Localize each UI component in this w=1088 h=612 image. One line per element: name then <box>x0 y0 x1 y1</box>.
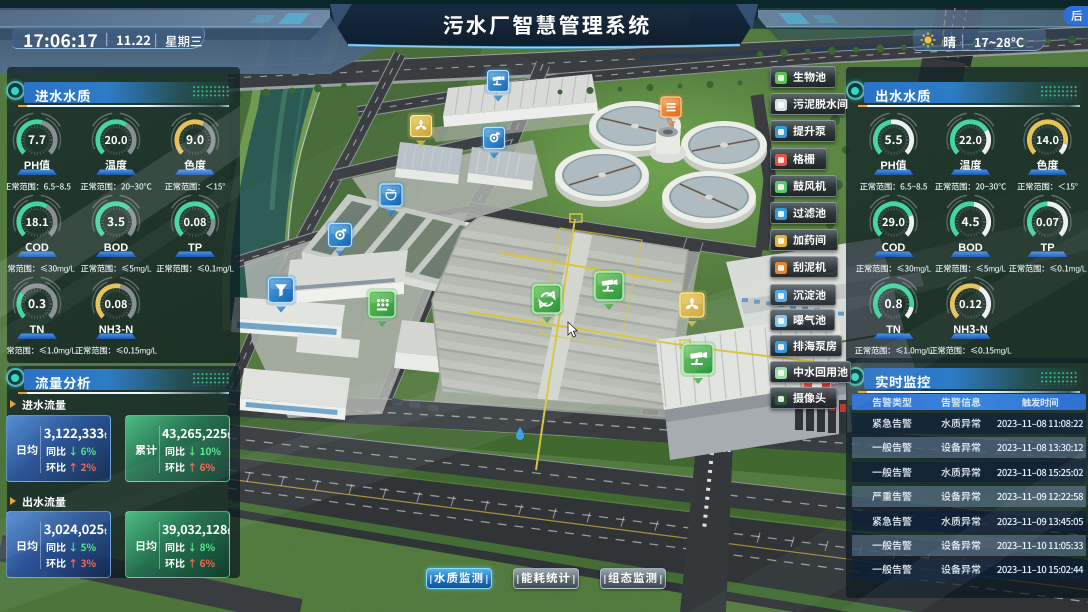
svg-text:TP: TP <box>1040 239 1054 255</box>
svg-text:0.3: 0.3 <box>28 295 46 312</box>
svg-text:20.0: 20.0 <box>104 132 127 148</box>
svg-text:9.0: 9.0 <box>186 131 204 148</box>
svg-text:温度: 温度 <box>960 157 982 173</box>
svg-text:正常范围：≤0.1mg/L: 正常范围：≤0.1mg/L <box>156 263 234 275</box>
svg-text:NH3-N: NH3-N <box>953 321 987 337</box>
svg-text:5.5: 5.5 <box>884 131 902 148</box>
svg-text:0.08: 0.08 <box>104 296 127 312</box>
svg-text:正常范围：＜15°: 正常范围：＜15° <box>1017 181 1078 193</box>
svg-text:4.5: 4.5 <box>961 213 979 230</box>
svg-text:7.7: 7.7 <box>28 131 46 148</box>
svg-text:温度: 温度 <box>105 157 127 173</box>
svg-text:PH值: PH值 <box>24 157 50 173</box>
svg-text:18.1: 18.1 <box>25 214 48 230</box>
svg-text:3.5: 3.5 <box>107 213 125 230</box>
svg-text:TP: TP <box>188 239 202 255</box>
svg-text:COD: COD <box>25 239 49 255</box>
svg-text:正常范围：≤30mg/L: 正常范围：≤30mg/L <box>856 263 932 275</box>
svg-text:PH值: PH值 <box>880 157 906 173</box>
svg-text:COD: COD <box>882 239 906 255</box>
svg-text:正常范围：6.5~8.5: 正常范围：6.5~8.5 <box>860 181 928 193</box>
svg-text:污水厂智慧管理系统: 污水厂智慧管理系统 <box>443 10 652 40</box>
svg-text:正常范围：≤0.1mg/L: 正常范围：≤0.1mg/L <box>1009 263 1087 275</box>
svg-text:TN: TN <box>886 321 901 337</box>
svg-text:正常范围：≤5mg/L: 正常范围：≤5mg/L <box>81 263 152 275</box>
svg-text:正常范围：20~30°C: 正常范围：20~30°C <box>935 181 1007 193</box>
svg-text:0.07: 0.07 <box>1036 214 1059 230</box>
svg-text:正常范围：≤1.0mg/L: 正常范围：≤1.0mg/L <box>7 345 76 357</box>
svg-text:NH3-N: NH3-N <box>99 321 133 337</box>
svg-text:色度: 色度 <box>1037 157 1059 173</box>
svg-text:色度: 色度 <box>184 157 206 173</box>
svg-text:正常范围：≤0.15mg/L: 正常范围：≤0.15mg/L <box>929 345 1012 357</box>
svg-text:14.0: 14.0 <box>1036 132 1059 148</box>
svg-text:正常范围：≤30mg/L: 正常范围：≤30mg/L <box>7 263 75 275</box>
svg-text:正常范围：20~30°C: 正常范围：20~30°C <box>80 181 152 193</box>
svg-text:正常范围：≤5mg/L: 正常范围：≤5mg/L <box>935 263 1006 275</box>
svg-text:22.0: 22.0 <box>959 132 982 148</box>
svg-text:0.12: 0.12 <box>959 296 982 312</box>
svg-text:0.8: 0.8 <box>884 295 902 312</box>
svg-text:BOD: BOD <box>958 239 983 255</box>
svg-text:正常范围：≤0.15mg/L: 正常范围：≤0.15mg/L <box>75 345 158 357</box>
svg-text:BOD: BOD <box>104 239 129 255</box>
svg-text:正常范围：≤1.0mg/L: 正常范围：≤1.0mg/L <box>855 345 933 357</box>
svg-text:正常范围：＜15°: 正常范围：＜15° <box>165 181 226 193</box>
svg-text:29.0: 29.0 <box>882 214 905 230</box>
svg-text:TN: TN <box>30 321 45 337</box>
svg-text:0.08: 0.08 <box>183 214 206 230</box>
svg-text:正常范围：6.5~8.5: 正常范围：6.5~8.5 <box>7 181 71 193</box>
